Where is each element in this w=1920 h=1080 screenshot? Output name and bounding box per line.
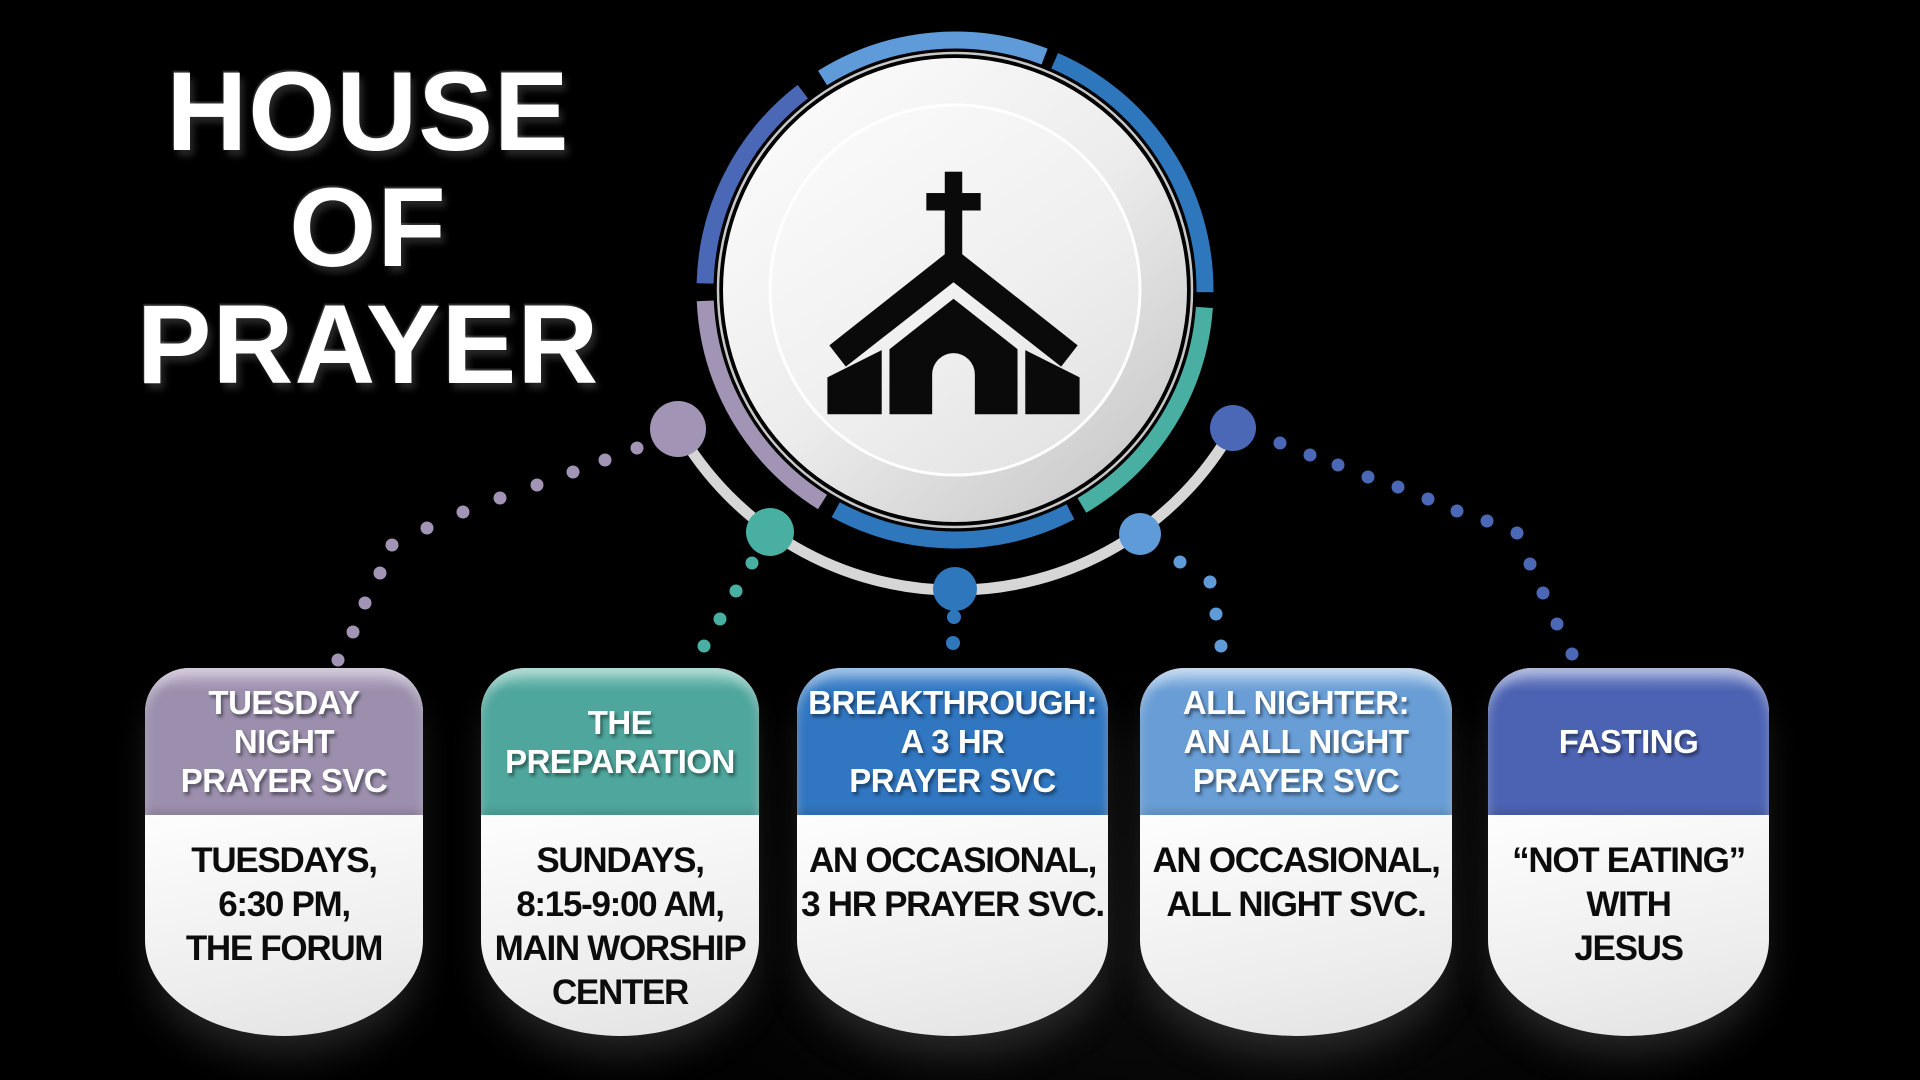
service-cards: TUESDAY NIGHT PRAYER SVC TUESDAYS, 6:30 … [0, 0, 1920, 1080]
card-header-title: TUESDAY NIGHT PRAYER SVC [145, 668, 423, 815]
card-body-text: AN OCCASIONAL, 3 HR PRAYER SVC. [797, 815, 1108, 927]
card-body-text: “NOT EATING” WITH JESUS [1488, 815, 1769, 971]
card-body-text: SUNDAYS, 8:15-9:00 AM, MAIN WORSHIP CENT… [481, 815, 759, 1015]
card-the-preparation: THE PREPARATION SUNDAYS, 8:15-9:00 AM, M… [481, 668, 759, 1036]
card-header-title: THE PREPARATION [481, 668, 759, 815]
card-fasting: FASTING “NOT EATING” WITH JESUS [1488, 668, 1769, 1036]
card-header-title: FASTING [1488, 668, 1769, 815]
card-breakthrough-3hr-prayer-svc: BREAKTHROUGH: A 3 HR PRAYER SVC AN OCCAS… [797, 668, 1108, 1036]
card-body-text: AN OCCASIONAL, ALL NIGHT SVC. [1140, 815, 1452, 927]
card-body-text: TUESDAYS, 6:30 PM, THE FORUM [145, 815, 423, 971]
card-header-title: BREAKTHROUGH: A 3 HR PRAYER SVC [797, 668, 1108, 815]
poster-canvas: HOUSE OF PRAYER [0, 0, 1920, 1080]
card-tuesday-night-prayer-svc: TUESDAY NIGHT PRAYER SVC TUESDAYS, 6:30 … [145, 668, 423, 1036]
card-header-title: ALL NIGHTER: AN ALL NIGHT PRAYER SVC [1140, 668, 1452, 815]
card-all-nighter-prayer-svc: ALL NIGHTER: AN ALL NIGHT PRAYER SVC AN … [1140, 668, 1452, 1036]
